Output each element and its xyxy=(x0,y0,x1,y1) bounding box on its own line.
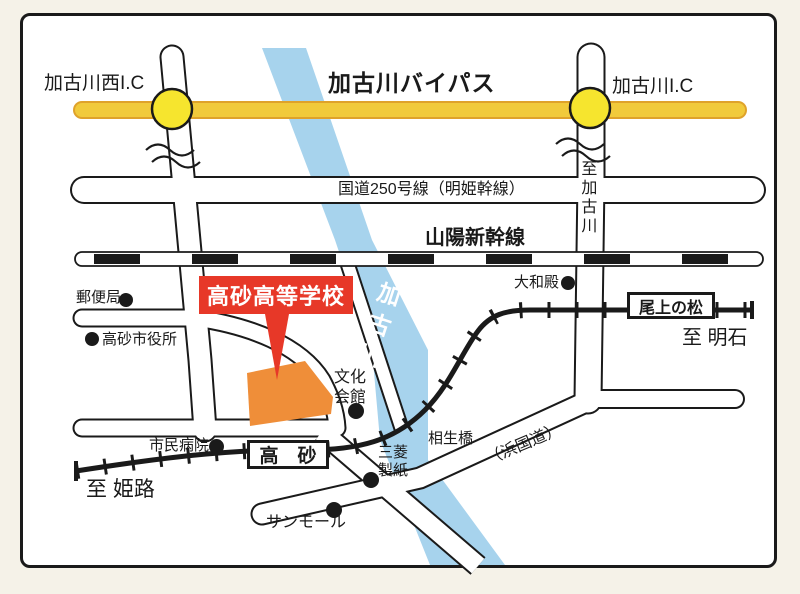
school-banner: 高砂高等学校 xyxy=(199,276,353,314)
poi-label-city-hospital: 市民病院 xyxy=(149,437,209,454)
label-to-himeji: 至 姫路 xyxy=(86,478,155,502)
station-box-onoenomatsu: 尾上の松 xyxy=(627,292,715,319)
poi-dot-culture-hall xyxy=(348,403,364,419)
poi-label-yamatoden: 大和殿 xyxy=(514,274,559,291)
poi-dot-mitsubishi-paper xyxy=(363,472,379,488)
label-to-kakogawa: 至加古川 xyxy=(577,160,595,270)
poi-label-sunmall: サンモール xyxy=(266,514,346,532)
label-route250: 国道250号線（明姫幹線） xyxy=(338,181,525,199)
ic-circle-east xyxy=(570,88,610,128)
label-shinkansen: 山陽新幹線 xyxy=(425,227,525,250)
poi-dot-city-hospital xyxy=(209,439,224,454)
label-ic-east: 加古川I.C xyxy=(612,76,693,98)
poi-label-mitsubishi-paper: 三菱製紙 xyxy=(378,444,412,480)
ic-circle-west xyxy=(152,89,192,129)
poi-label-post-office: 郵便局 xyxy=(76,289,121,306)
station-box-takasago: 高 砂 xyxy=(247,440,329,469)
poi-label-culture-hall: 文化会館 xyxy=(334,368,370,408)
label-to-akashi: 至 明石 xyxy=(682,327,748,350)
poi-label-city-hall: 高砂市役所 xyxy=(102,331,177,348)
poi-dot-yamatoden xyxy=(561,276,575,290)
label-bypass: 加古川バイパス xyxy=(328,70,496,96)
poi-dot-post-office xyxy=(119,293,133,307)
road-break-marks xyxy=(146,139,610,168)
label-aioi-bridge: 相生橋 xyxy=(428,430,473,447)
railway-shinkansen xyxy=(75,252,763,266)
label-ic-west: 加古川西I.C xyxy=(44,73,144,95)
poi-dot-city-hall xyxy=(85,332,99,346)
